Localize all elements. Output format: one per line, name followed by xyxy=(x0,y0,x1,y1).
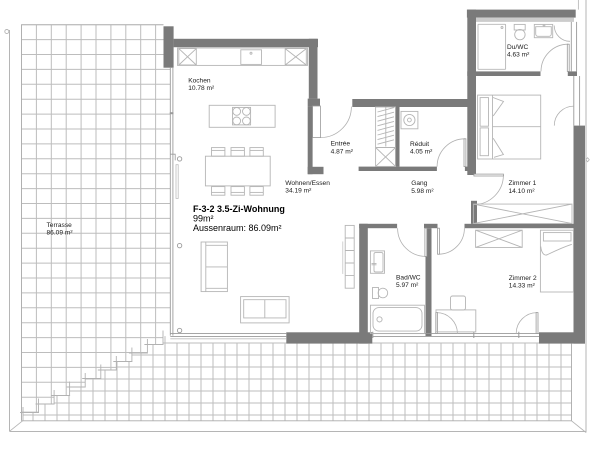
svg-text:Zimmer 1: Zimmer 1 xyxy=(509,180,537,187)
svg-text:4.87 m²: 4.87 m² xyxy=(331,148,354,155)
svg-text:4.63 m²: 4.63 m² xyxy=(507,52,530,59)
svg-text:Terrasse: Terrasse xyxy=(47,222,73,229)
svg-text:Bad/WC: Bad/WC xyxy=(396,274,421,281)
svg-text:Réduit: Réduit xyxy=(410,141,429,148)
svg-text:Entrée: Entrée xyxy=(331,141,351,148)
svg-text:86.09 m²: 86.09 m² xyxy=(47,229,74,236)
svg-text:F-3-2 3.5-Zi-Wohnung: F-3-2 3.5-Zi-Wohnung xyxy=(193,204,285,214)
svg-text:Aussenraum: 86.09m²: Aussenraum: 86.09m² xyxy=(193,223,282,233)
svg-text:Wohnen/Essen: Wohnen/Essen xyxy=(285,180,330,187)
svg-text:99m²: 99m² xyxy=(193,213,214,223)
svg-text:Gang: Gang xyxy=(411,180,427,187)
svg-text:Kochen: Kochen xyxy=(188,77,211,84)
svg-text:Du/WC: Du/WC xyxy=(507,44,528,51)
svg-text:5.97 m²: 5.97 m² xyxy=(396,282,419,289)
svg-text:14.10 m²: 14.10 m² xyxy=(509,188,536,195)
svg-text:10.78 m²: 10.78 m² xyxy=(188,85,215,92)
svg-text:14.33 m²: 14.33 m² xyxy=(509,283,536,290)
svg-text:34.19 m²: 34.19 m² xyxy=(285,187,312,194)
svg-text:4.05 m²: 4.05 m² xyxy=(410,149,433,156)
svg-text:5.98 m²: 5.98 m² xyxy=(411,188,434,195)
svg-text:Zimmer 2: Zimmer 2 xyxy=(509,275,537,282)
